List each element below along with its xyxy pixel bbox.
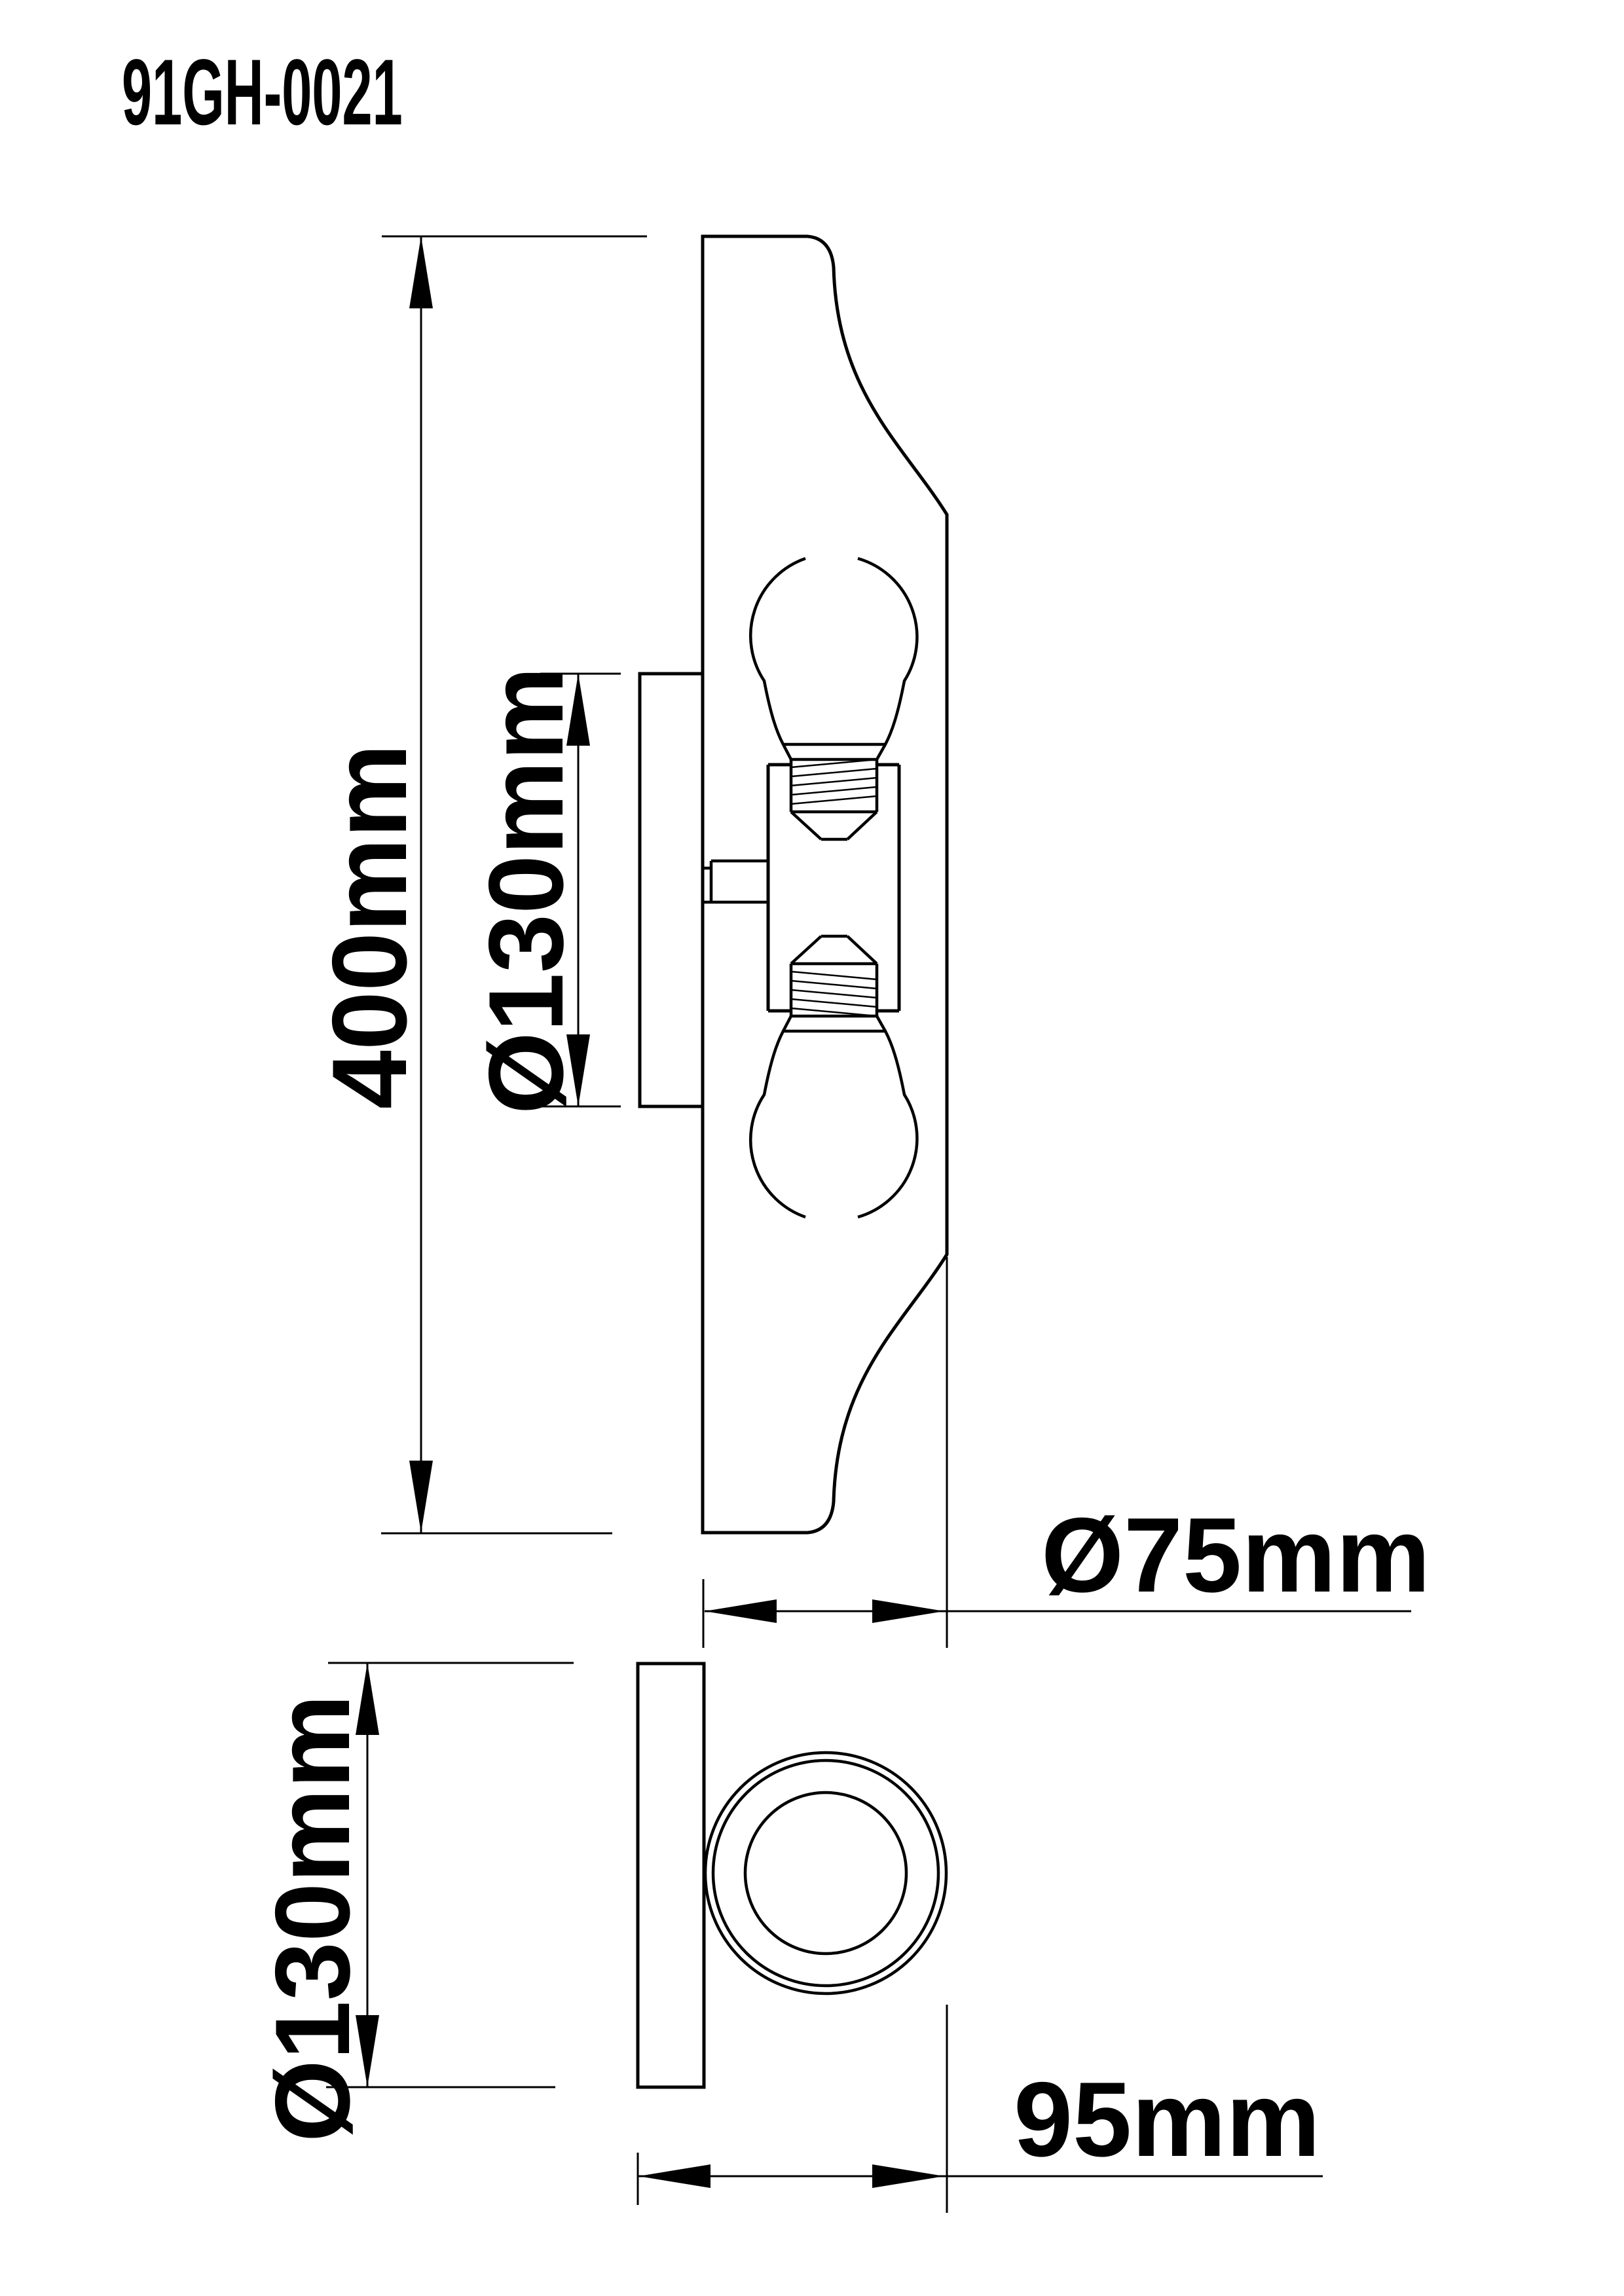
bulb-lower-neck-skirt (783, 1016, 885, 1031)
socket-housing (768, 765, 899, 1011)
dimension-canopy-depth: Ø75mm (703, 1257, 1430, 1648)
bulb-upper-globe-left (750, 558, 805, 759)
bulb-upper-globe-right (858, 558, 917, 759)
total-depth-arrow-right-icon (872, 2164, 944, 2188)
height-dimension-label: 400mm (310, 744, 429, 1109)
dimension-overall-depth: 95mm (638, 2005, 1323, 2213)
depth-dimension-label: Ø75mm (1041, 1496, 1430, 1614)
bulb-upper-tip (791, 812, 877, 839)
canopy-outline (703, 236, 947, 1533)
bulb-lower-threads (791, 972, 877, 1016)
technical-drawing: 91GH-0021 (0, 0, 1624, 2296)
total-depth-dimension-label: 95mm (1014, 2060, 1320, 2179)
total-depth-arrow-left-icon (638, 2164, 710, 2188)
bulb-lower (750, 936, 917, 1217)
dimension-plate-diameter: Ø130mm (253, 1663, 574, 2142)
depth-arrow-right-icon (872, 1599, 944, 1623)
bottom-view: Ø130mm 95mm (253, 1663, 1323, 2213)
depth-extension-lines (703, 1257, 947, 1648)
backplate-dimension-label: Ø130mm (467, 666, 585, 1114)
mounting-stem (703, 861, 768, 902)
bottom-plate-edge (638, 1664, 704, 2087)
bulb-lower-globe-right (858, 1016, 917, 1217)
bulb-upper (750, 558, 917, 839)
bulb-lower-globe-left (750, 1016, 805, 1217)
bulb-upper-neck-skirt (783, 744, 885, 759)
bulb-upper-threads (791, 759, 877, 804)
side-view: 400mm Ø130mm Ø75mm (310, 236, 1430, 1648)
cylinder-inner-ring (745, 1793, 906, 1954)
cylinder-outer-ring (705, 1753, 946, 1994)
bulb-lower-tip (791, 936, 877, 964)
dimension-backplate-diameter: Ø130mm (467, 666, 621, 1114)
plate-dimension-label: Ø130mm (253, 1694, 372, 2142)
drawing-sheet: 91GH-0021 (0, 0, 1624, 2296)
backplate-edge (640, 674, 703, 1106)
depth-arrow-left-icon (705, 1599, 777, 1623)
cylinder-middle-ring (713, 1760, 938, 1986)
height-arrow-up-icon (409, 236, 433, 308)
bulb-lower-screw-base (791, 964, 877, 1016)
model-number: 91GH-0021 (122, 39, 403, 144)
bulb-upper-screw-base (791, 759, 877, 812)
height-arrow-down-icon (409, 1461, 433, 1533)
